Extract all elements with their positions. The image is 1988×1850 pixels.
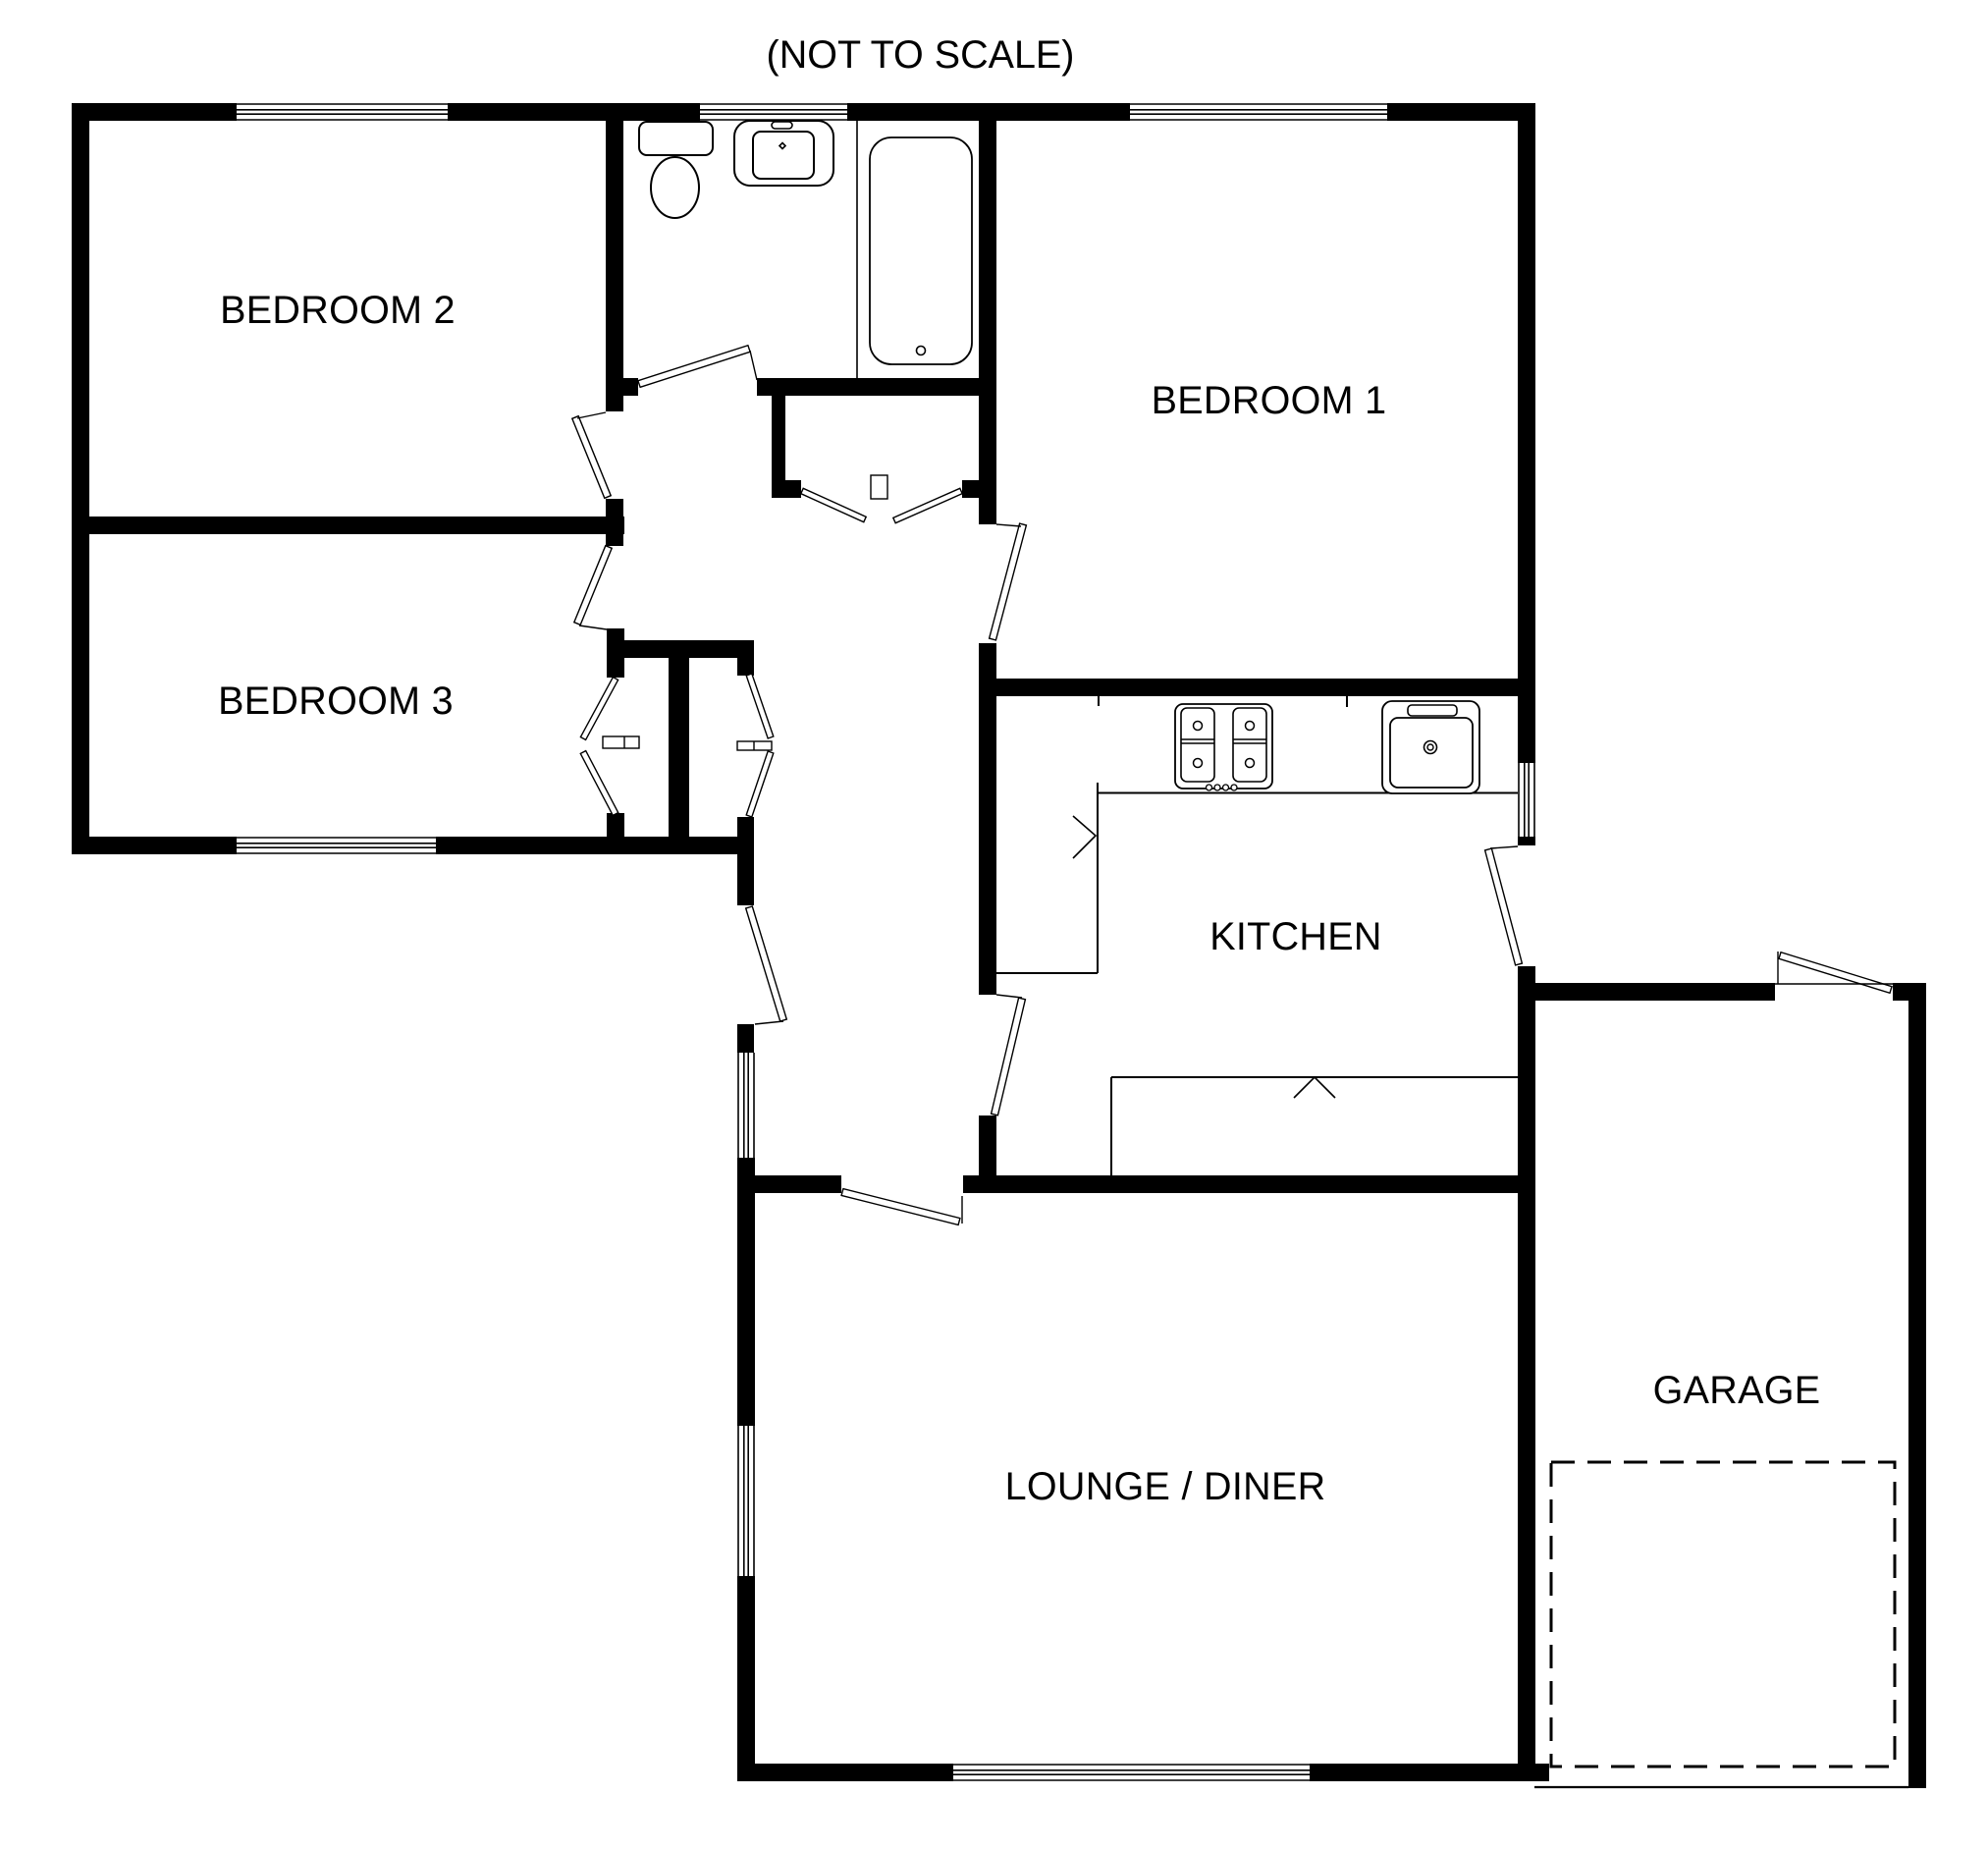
svg-text:BEDROOM 2: BEDROOM 2 — [220, 289, 456, 332]
svg-text:BEDROOM 1: BEDROOM 1 — [1152, 379, 1387, 422]
svg-text:GARAGE: GARAGE — [1653, 1369, 1821, 1412]
svg-text:BEDROOM 3: BEDROOM 3 — [218, 680, 454, 723]
svg-text:LOUNGE / DINER: LOUNGE / DINER — [1005, 1465, 1326, 1508]
svg-text:KITCHEN: KITCHEN — [1209, 915, 1381, 958]
svg-text:(NOT TO SCALE): (NOT TO SCALE) — [767, 33, 1075, 77]
